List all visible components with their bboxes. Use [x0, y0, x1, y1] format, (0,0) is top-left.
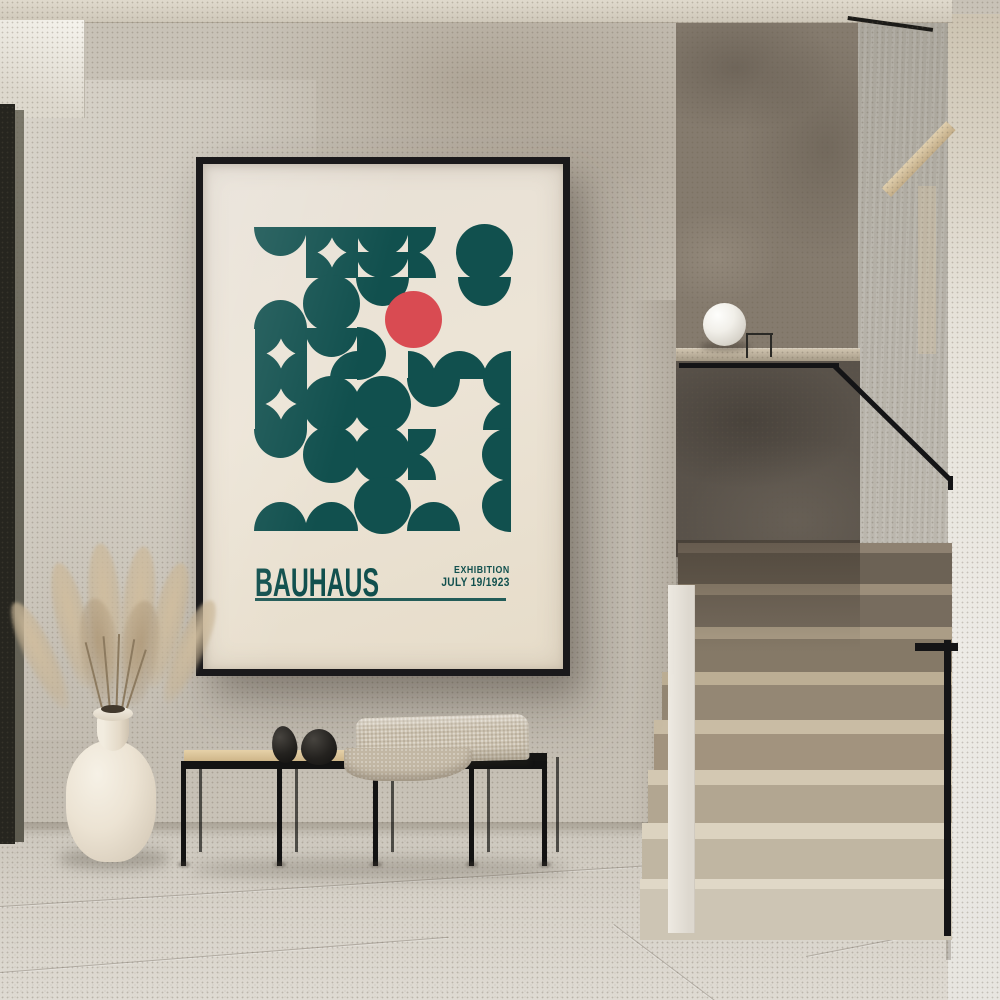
handrail-bracket — [915, 643, 958, 651]
pattern-shape — [483, 402, 511, 430]
bench-foot-shadow — [466, 862, 478, 867]
glass-glare — [203, 164, 419, 669]
bench-leg — [373, 769, 378, 866]
bench-leg — [469, 769, 474, 866]
pattern-shape — [483, 351, 511, 379]
step — [662, 672, 952, 720]
bench-back-leg — [295, 757, 298, 852]
handrail-end — [948, 476, 953, 490]
step-tread — [654, 720, 952, 734]
bench-back-leg — [199, 757, 202, 852]
pattern-cell-circle — [459, 227, 510, 278]
step-riser — [654, 734, 952, 770]
sphere-lamp — [703, 303, 746, 346]
poster-caption: EXHIBITION JULY 19/1923 — [442, 565, 510, 590]
bench-leg — [181, 769, 186, 866]
decor-frame — [746, 333, 748, 358]
decor-frame — [746, 333, 773, 335]
bench-foot-shadow — [370, 862, 382, 867]
date-label: JULY 19/1923 — [442, 577, 510, 590]
bench-back-leg — [556, 757, 559, 852]
bench-leg — [542, 769, 547, 866]
bench-back-leg — [487, 757, 490, 852]
poster-frame: BAUHAUS EXHIBITION JULY 19/1923 — [196, 157, 570, 676]
handrail-horizontal — [679, 363, 839, 368]
pattern-shape — [458, 277, 511, 306]
pattern-shape — [482, 479, 511, 532]
bench-shadow — [190, 858, 570, 880]
pattern-cell-valley — [459, 328, 510, 379]
stair-side-wall — [668, 585, 695, 933]
handrail-post — [944, 640, 951, 936]
pattern-cell-semi-left — [459, 480, 510, 531]
pattern-cell-semi-left — [459, 429, 510, 480]
black-stone-decor — [301, 729, 337, 765]
red-accent-circle — [385, 291, 442, 348]
bench-foot-shadow — [539, 862, 551, 867]
exhibition-label: EXHIBITION — [442, 565, 510, 577]
bench-foot-shadow — [178, 862, 190, 867]
bench-foot-shadow — [274, 862, 286, 867]
ceramic-vase — [66, 740, 156, 862]
pattern-cell-semi-down — [459, 278, 510, 329]
step-tread — [662, 672, 952, 685]
interior-scene: BAUHAUS EXHIBITION JULY 19/1923 — [0, 0, 1000, 1000]
step-riser — [662, 685, 952, 720]
decor-frame — [770, 334, 772, 357]
pattern-cell-quarters-right — [459, 379, 510, 430]
pattern-shape — [482, 428, 511, 481]
steps-shadow — [676, 540, 860, 652]
step — [654, 720, 952, 770]
pattern-shape — [456, 224, 513, 281]
vase-mouth — [101, 705, 125, 713]
bauhaus-poster: BAUHAUS EXHIBITION JULY 19/1923 — [203, 164, 563, 669]
bench-leg — [277, 769, 282, 866]
pattern-shape — [432, 351, 460, 379]
